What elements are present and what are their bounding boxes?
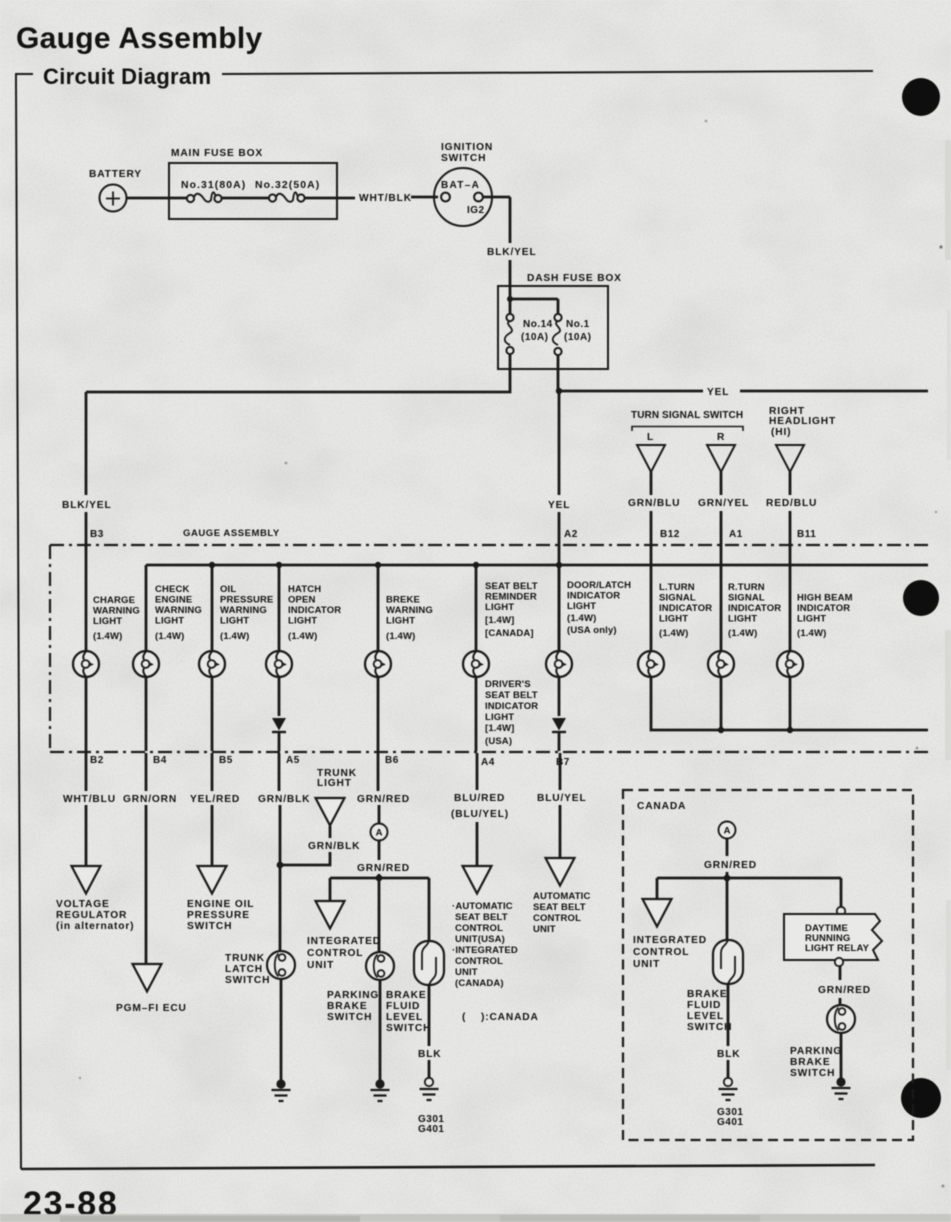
svg-text:PARKING: PARKING xyxy=(790,1046,842,1057)
svg-text:INDICATOR: INDICATOR xyxy=(797,603,850,614)
svg-text:(1.4W): (1.4W) xyxy=(155,631,184,642)
svg-text:GRN/YEL: GRN/YEL xyxy=(698,498,749,509)
svg-text:(USA only): (USA only) xyxy=(567,625,617,636)
svg-text:BRAKE: BRAKE xyxy=(790,1057,830,1068)
svg-text:BLU/YEL: BLU/YEL xyxy=(537,793,587,804)
svg-text:B2: B2 xyxy=(90,755,104,766)
svg-text:(1.4W): (1.4W) xyxy=(386,631,415,642)
svg-text:(10A): (10A) xyxy=(521,332,549,343)
svg-text:HEADLIGHT: HEADLIGHT xyxy=(769,416,836,427)
svg-text:BLK/YEL: BLK/YEL xyxy=(62,500,112,511)
svg-text:SWITCH: SWITCH xyxy=(225,975,270,986)
svg-text:PGM–FI ECU: PGM–FI ECU xyxy=(116,1003,187,1014)
svg-text:INDICATOR: INDICATOR xyxy=(288,605,341,616)
svg-text:(1.4W): (1.4W) xyxy=(728,628,757,639)
svg-text:INDICATOR: INDICATOR xyxy=(728,603,781,614)
svg-text:TURN SIGNAL SWITCH: TURN SIGNAL SWITCH xyxy=(631,410,743,421)
svg-text:DASH FUSE BOX: DASH FUSE BOX xyxy=(527,273,622,284)
svg-text:G401: G401 xyxy=(717,1117,743,1128)
svg-text:LIGHT: LIGHT xyxy=(485,602,514,613)
svg-text:INDICATOR: INDICATOR xyxy=(567,591,620,602)
svg-text:No.32(50A): No.32(50A) xyxy=(255,180,320,191)
svg-text:GRN/BLK: GRN/BLK xyxy=(258,794,310,805)
svg-text:(in alternator): (in alternator) xyxy=(56,921,134,932)
svg-text:FLUID: FLUID xyxy=(687,1000,721,1011)
svg-text:WHT/BLK: WHT/BLK xyxy=(359,193,412,204)
svg-text:UNIT: UNIT xyxy=(533,924,556,935)
svg-text:UNIT: UNIT xyxy=(307,960,334,971)
svg-text:LIGHT: LIGHT xyxy=(567,601,596,612)
svg-text:BLK: BLK xyxy=(418,1049,442,1060)
svg-text:No.1: No.1 xyxy=(566,319,590,330)
svg-text:BLK: BLK xyxy=(717,1049,741,1060)
svg-text:BRAKE: BRAKE xyxy=(386,990,426,1001)
svg-text:GRN/RED: GRN/RED xyxy=(704,860,757,871)
svg-text:CONTROL: CONTROL xyxy=(533,913,581,924)
svg-text:CHECK: CHECK xyxy=(155,584,190,595)
svg-text:WARNING: WARNING xyxy=(155,605,202,616)
svg-text:( ):CANADA: ( ):CANADA xyxy=(462,1012,539,1023)
svg-text:[CANADA]: [CANADA] xyxy=(485,628,534,639)
svg-text:·INTEGRATED: ·INTEGRATED xyxy=(452,945,518,956)
svg-text:R: R xyxy=(717,432,725,443)
svg-text:GRN/RED: GRN/RED xyxy=(818,985,871,996)
svg-text:LIGHT: LIGHT xyxy=(317,778,352,789)
svg-text:SWITCH: SWITCH xyxy=(187,921,232,932)
svg-text:B5: B5 xyxy=(219,755,233,766)
svg-text:INDICATOR: INDICATOR xyxy=(659,603,712,614)
svg-text:PRESSURE: PRESSURE xyxy=(187,910,250,921)
svg-text:ENGINE: ENGINE xyxy=(155,595,192,606)
svg-text:(1.4W): (1.4W) xyxy=(659,628,688,639)
svg-text:L.TURN: L.TURN xyxy=(659,582,695,593)
svg-text:SWITCH: SWITCH xyxy=(790,1068,835,1079)
svg-text:UNIT: UNIT xyxy=(633,959,660,970)
svg-text:B11: B11 xyxy=(797,529,816,540)
svg-text:(1.4W): (1.4W) xyxy=(220,631,249,642)
svg-text:MAIN FUSE BOX: MAIN FUSE BOX xyxy=(171,148,263,159)
svg-text:SEAT BELT: SEAT BELT xyxy=(455,912,508,923)
svg-text:WHT/BLU: WHT/BLU xyxy=(63,794,116,805)
svg-text:REMINDER: REMINDER xyxy=(485,592,537,603)
svg-text:(BLU/YEL): (BLU/YEL) xyxy=(451,809,509,820)
svg-text:SIGNAL: SIGNAL xyxy=(659,593,696,604)
svg-text:SWITCH: SWITCH xyxy=(441,153,486,164)
svg-text:WARNING: WARNING xyxy=(220,605,267,616)
svg-text:VOLTAGE: VOLTAGE xyxy=(56,899,110,910)
svg-text:(HI): (HI) xyxy=(771,427,791,438)
svg-text:LIGHT: LIGHT xyxy=(155,616,184,627)
svg-text:OPEN: OPEN xyxy=(288,595,316,606)
svg-text:REGULATOR: REGULATOR xyxy=(56,910,127,921)
svg-text:A1: A1 xyxy=(729,529,743,540)
svg-text:OIL: OIL xyxy=(220,584,236,595)
svg-text:LATCH: LATCH xyxy=(225,964,263,975)
svg-text:YEL: YEL xyxy=(707,387,729,398)
svg-text:(USA): (USA) xyxy=(485,736,512,747)
svg-text:Circuit Diagram: Circuit Diagram xyxy=(43,64,211,89)
svg-text:IGNITION: IGNITION xyxy=(441,142,493,153)
svg-text:PRESSURE: PRESSURE xyxy=(220,595,273,606)
svg-text:YEL/RED: YEL/RED xyxy=(190,794,240,805)
svg-text:SWITCH: SWITCH xyxy=(386,1023,431,1034)
svg-text:AUTOMATIC: AUTOMATIC xyxy=(533,891,590,902)
svg-text:[1.4W]: [1.4W] xyxy=(485,615,514,626)
svg-text:SWITCH: SWITCH xyxy=(687,1022,732,1033)
svg-text:LIGHT: LIGHT xyxy=(659,614,688,625)
svg-text:DRIVER'S: DRIVER'S xyxy=(485,679,531,690)
svg-text:CONTROL: CONTROL xyxy=(307,948,363,959)
svg-text:BRAKE: BRAKE xyxy=(687,989,727,1000)
svg-text:LIGHT: LIGHT xyxy=(485,712,514,723)
svg-text:FLUID: FLUID xyxy=(386,1001,420,1012)
svg-text:TRUNK: TRUNK xyxy=(225,953,265,964)
svg-text:SEAT BELT: SEAT BELT xyxy=(533,902,586,913)
svg-text:UNIT(USA): UNIT(USA) xyxy=(455,934,505,945)
svg-text:B7: B7 xyxy=(556,757,570,768)
svg-text:LIGHT: LIGHT xyxy=(797,614,826,625)
svg-text:BAT–A: BAT–A xyxy=(441,180,480,191)
svg-text:Gauge Assembly: Gauge Assembly xyxy=(16,22,263,55)
svg-text:LIGHT: LIGHT xyxy=(220,616,249,627)
svg-text:LIGHT: LIGHT xyxy=(93,616,122,627)
svg-text:B4: B4 xyxy=(153,755,167,766)
svg-text:(CANADA): (CANADA) xyxy=(455,978,504,989)
svg-text:GAUGE ASSEMBLY: GAUGE ASSEMBLY xyxy=(183,528,280,539)
svg-text:BLK/YEL: BLK/YEL xyxy=(487,247,537,258)
svg-text:A4: A4 xyxy=(481,757,495,768)
svg-text:·AUTOMATIC: ·AUTOMATIC xyxy=(452,901,513,912)
svg-text:CHARGE: CHARGE xyxy=(93,595,135,606)
svg-text:B12: B12 xyxy=(660,529,680,540)
svg-text:LIGHT: LIGHT xyxy=(728,614,757,625)
svg-text:A5: A5 xyxy=(286,755,300,766)
svg-text:INTEGRATED: INTEGRATED xyxy=(633,935,707,946)
svg-text:YEL: YEL xyxy=(548,500,570,511)
svg-text:SEAT BELT: SEAT BELT xyxy=(485,581,538,592)
svg-text:CANADA: CANADA xyxy=(637,801,686,812)
svg-text:INDICATOR: INDICATOR xyxy=(485,701,538,712)
svg-text:B6: B6 xyxy=(385,755,399,766)
svg-text:LEVEL: LEVEL xyxy=(386,1012,423,1023)
svg-text:BREKE: BREKE xyxy=(386,595,420,606)
svg-text:LIGHT: LIGHT xyxy=(288,616,317,627)
svg-text:SWITCH: SWITCH xyxy=(327,1012,372,1023)
svg-text:GRN/RED: GRN/RED xyxy=(357,794,410,805)
svg-text:WARNING: WARNING xyxy=(93,606,140,617)
svg-text:B3: B3 xyxy=(90,529,104,540)
svg-text:HIGH BEAM: HIGH BEAM xyxy=(797,593,853,604)
svg-text:DOOR/LATCH: DOOR/LATCH xyxy=(567,580,631,591)
svg-text:CONTROL: CONTROL xyxy=(455,923,503,934)
svg-text:RED/BLU: RED/BLU xyxy=(766,498,817,509)
svg-text:G401: G401 xyxy=(418,1124,444,1135)
svg-text:PARKING: PARKING xyxy=(327,990,379,1001)
svg-text:(1.4W): (1.4W) xyxy=(797,628,826,639)
svg-text:IG2: IG2 xyxy=(467,205,485,216)
svg-text:BLU/RED: BLU/RED xyxy=(454,793,505,804)
svg-text:INTEGRATED: INTEGRATED xyxy=(307,936,381,947)
svg-text:LIGHT RELAY: LIGHT RELAY xyxy=(805,943,870,954)
svg-text:GRN/RED: GRN/RED xyxy=(357,863,410,874)
svg-text:L: L xyxy=(647,432,654,443)
svg-text:CONTROL: CONTROL xyxy=(455,956,503,967)
svg-text:(10A): (10A) xyxy=(564,332,592,343)
svg-text:(1.4W): (1.4W) xyxy=(288,631,317,642)
svg-text:No.31(80A): No.31(80A) xyxy=(181,180,246,191)
svg-text:(1.4W): (1.4W) xyxy=(567,613,596,624)
svg-text:BATTERY: BATTERY xyxy=(89,169,142,180)
svg-text:BRAKE: BRAKE xyxy=(327,1001,367,1012)
svg-text:No.14: No.14 xyxy=(523,319,553,330)
svg-text:HATCH: HATCH xyxy=(288,584,321,595)
svg-text:LEVEL: LEVEL xyxy=(687,1011,724,1022)
svg-text:ENGINE OIL: ENGINE OIL xyxy=(187,899,254,910)
svg-text:SIGNAL: SIGNAL xyxy=(728,593,765,604)
svg-text:GRN/BLK: GRN/BLK xyxy=(308,841,360,852)
svg-text:UNIT: UNIT xyxy=(455,967,478,978)
svg-text:GRN/ORN: GRN/ORN xyxy=(123,794,177,805)
svg-text:(1.4W): (1.4W) xyxy=(93,631,122,642)
svg-text:[1.4W]: [1.4W] xyxy=(485,723,514,734)
svg-text:GRN/BLU: GRN/BLU xyxy=(628,498,680,509)
svg-text:WARNING: WARNING xyxy=(386,605,433,616)
svg-text:SEAT BELT: SEAT BELT xyxy=(485,690,538,701)
svg-text:CONTROL: CONTROL xyxy=(633,947,689,958)
svg-text:LIGHT: LIGHT xyxy=(386,616,415,627)
svg-text:A2: A2 xyxy=(564,529,578,540)
svg-text:R.TURN: R.TURN xyxy=(728,582,765,593)
